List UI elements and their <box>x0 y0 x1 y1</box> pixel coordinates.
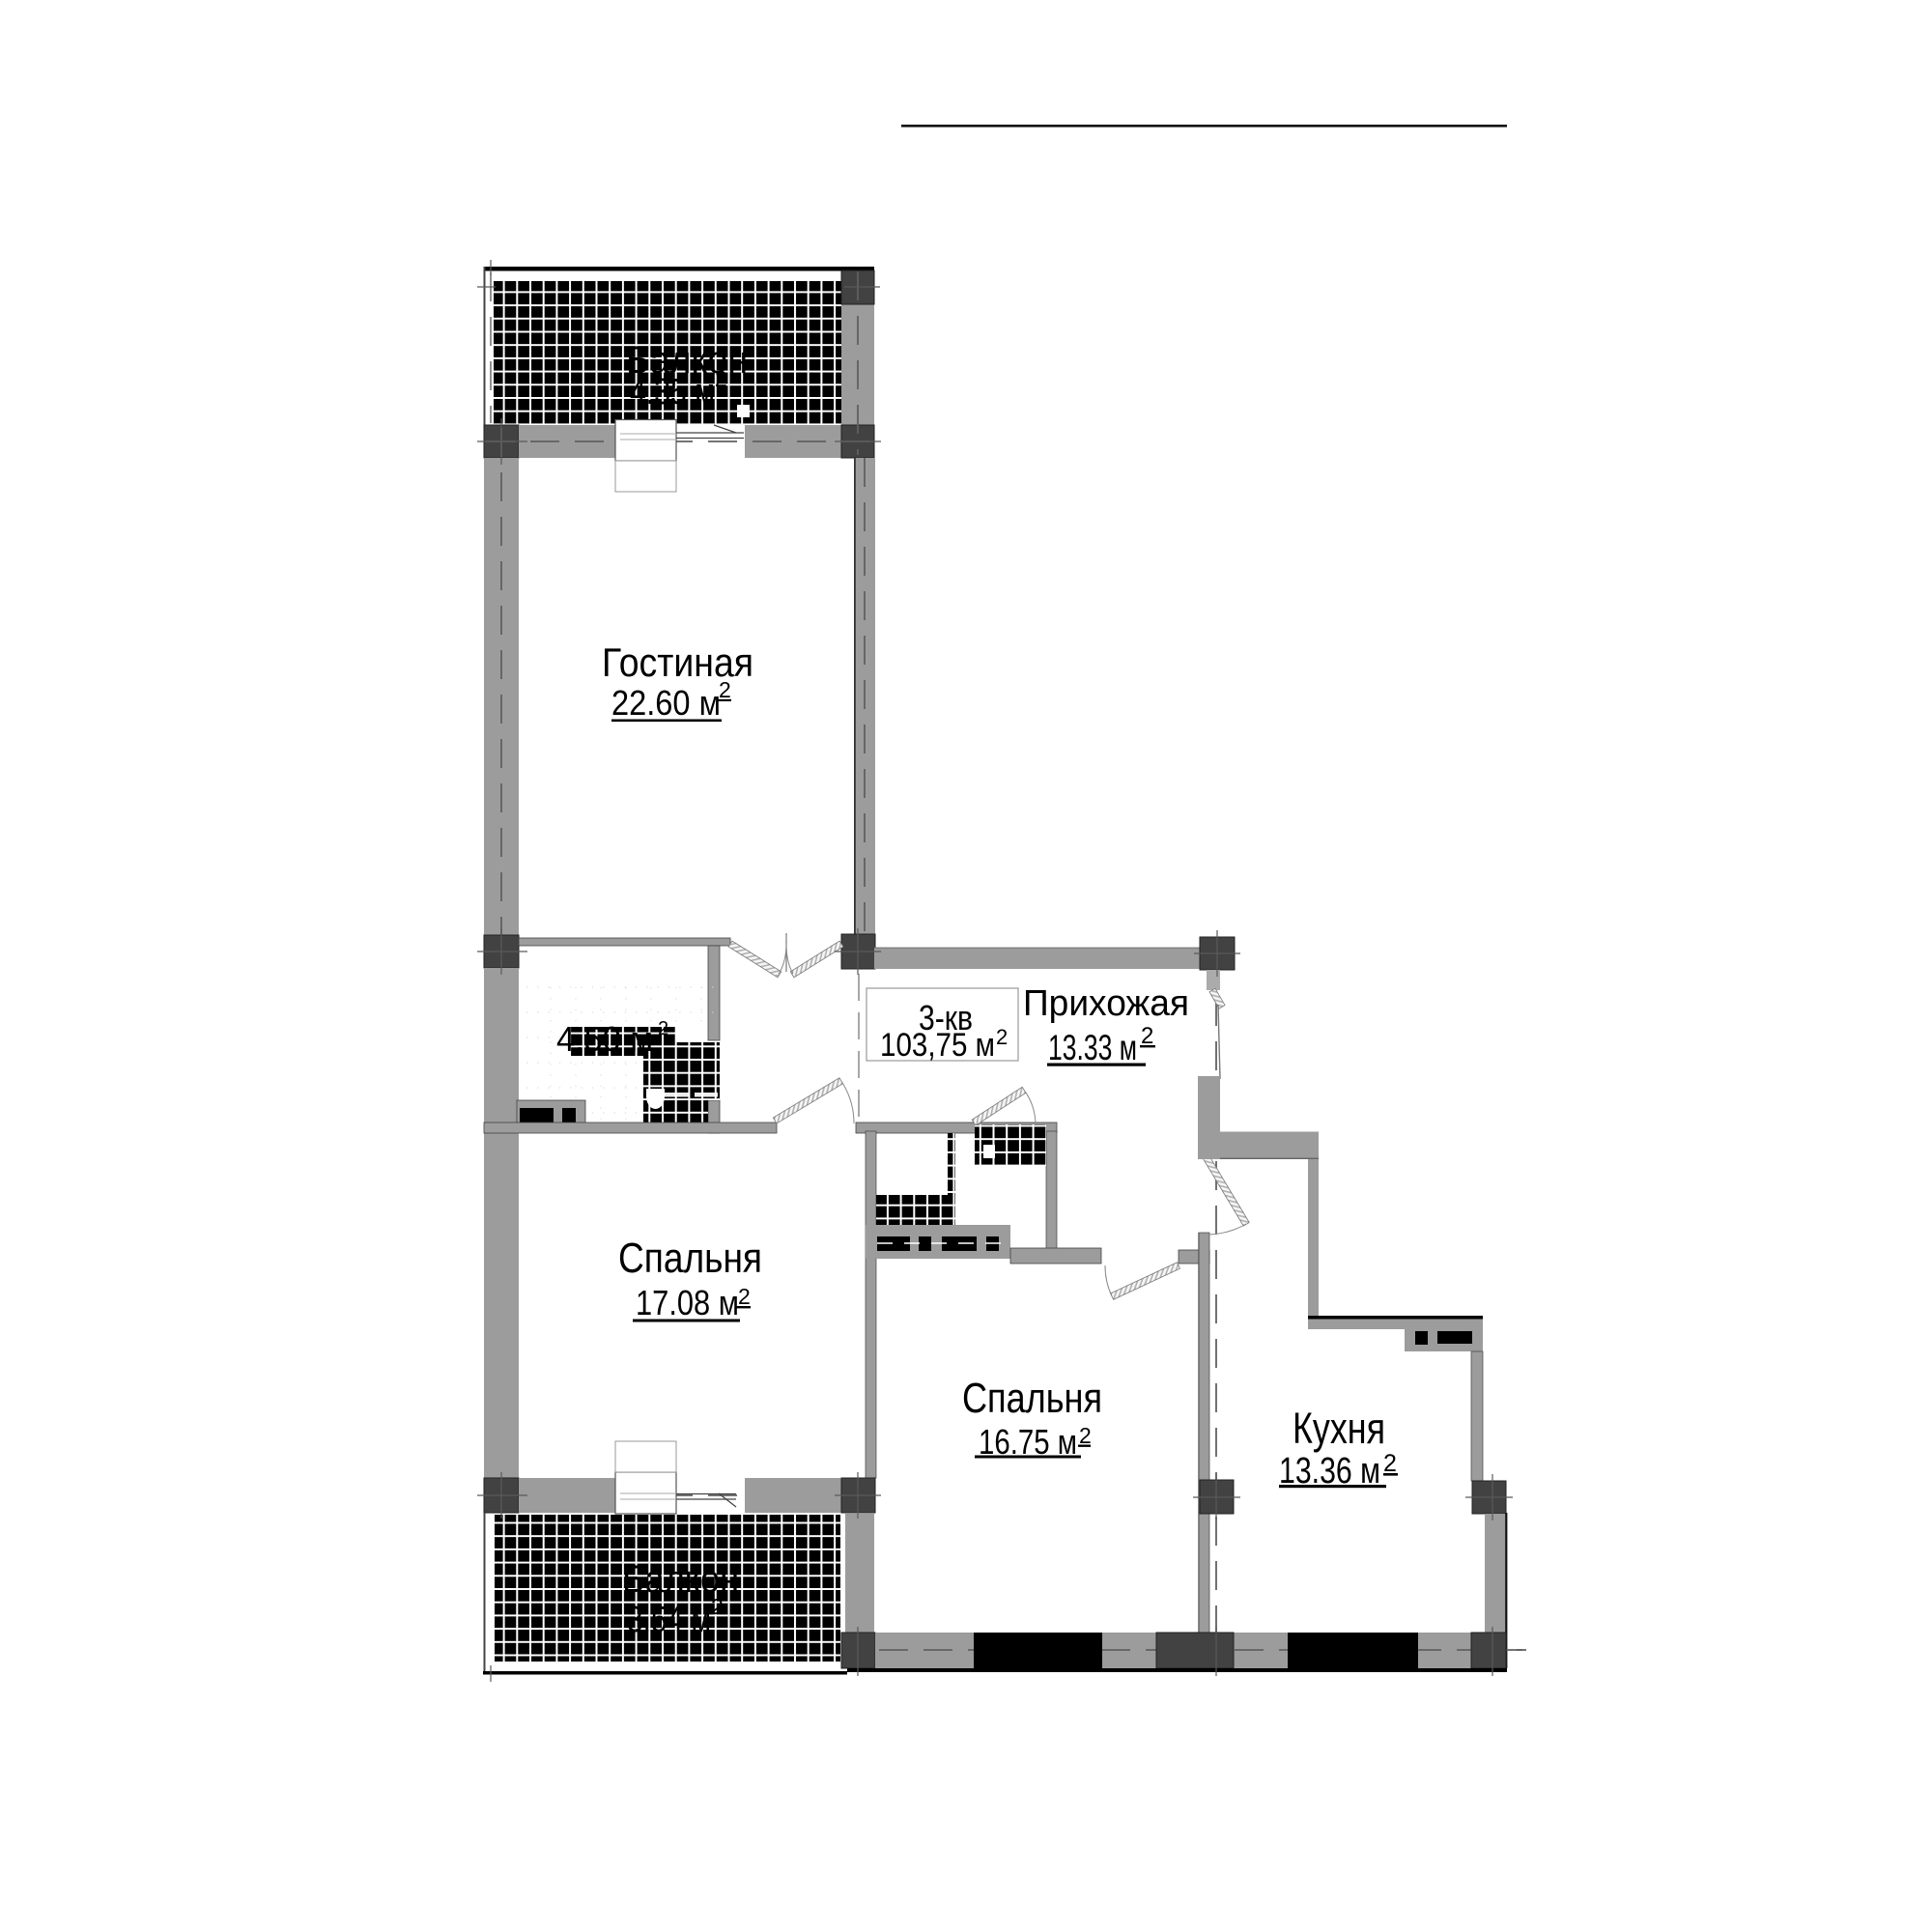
svg-text:2: 2 <box>715 366 727 391</box>
svg-text:13.33 м: 13.33 м <box>1048 1028 1137 1067</box>
svg-text:22.60 м: 22.60 м <box>611 683 721 723</box>
svg-text:Прихожая: Прихожая <box>1023 983 1189 1024</box>
svg-text:17.08 м: 17.08 м <box>636 1283 739 1322</box>
svg-text:2: 2 <box>1383 1450 1397 1477</box>
svg-text:4.50 м: 4.50 м <box>556 1019 653 1059</box>
svg-text:2: 2 <box>711 1594 724 1619</box>
svg-text:2: 2 <box>1141 1023 1153 1049</box>
svg-text:2: 2 <box>719 677 731 702</box>
svg-text:2: 2 <box>1079 1423 1092 1448</box>
svg-text:2: 2 <box>658 1018 668 1039</box>
svg-text:103,75 м: 103,75 м <box>880 1027 995 1064</box>
svg-text:2: 2 <box>996 1025 1008 1049</box>
svg-text:Спальня: Спальня <box>962 1375 1102 1422</box>
svg-text:2: 2 <box>738 1284 751 1309</box>
svg-text:3.54 м: 3.54 м <box>627 1600 711 1640</box>
svg-text:Спальня: Спальня <box>618 1235 762 1282</box>
svg-text:Кухня: Кухня <box>1293 1404 1385 1453</box>
svg-text:4.35 м: 4.35 м <box>630 372 715 412</box>
